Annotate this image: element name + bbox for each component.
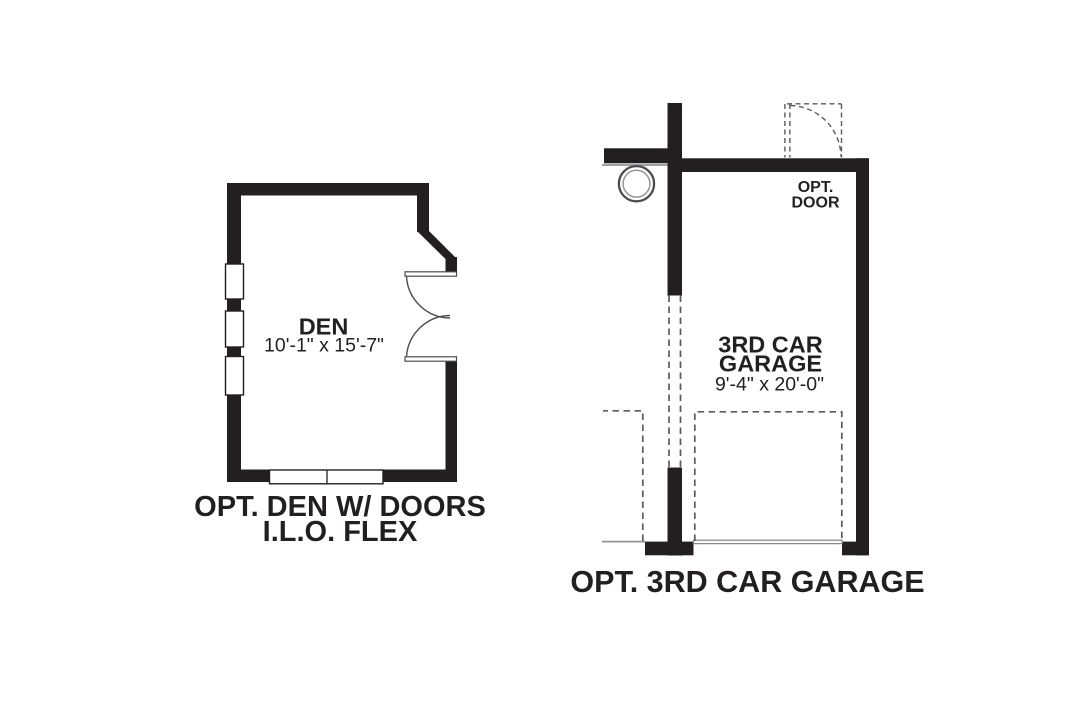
opt-door-label-line1: OPT. — [798, 179, 834, 196]
floorplan-page: DEN 10'-1" x 15'-7" OPT. DEN W/ DOORS I.… — [0, 0, 1080, 720]
floorplan-canvas: DEN 10'-1" x 15'-7" OPT. DEN W/ DOORS I.… — [0, 0, 1080, 720]
den-window-left-1 — [226, 264, 244, 299]
garage-wall-right — [856, 158, 869, 555]
garage-room-dimensions: 9'-4" x 20'-0" — [715, 374, 824, 396]
garage-column-circle-outer — [619, 166, 654, 201]
den-window-bottom — [270, 470, 384, 484]
den-room-dimensions: 10'-1" x 15'-7" — [264, 335, 384, 357]
garage-caption: OPT. 3RD CAR GARAGE — [570, 565, 924, 599]
garage-wall-top — [682, 158, 869, 172]
garage-wall-stub-bottom-right — [842, 542, 869, 556]
den-wall-diagonal — [417, 231, 457, 259]
den-door-swing-top — [407, 276, 451, 318]
den-window-left-2 — [226, 311, 244, 347]
den-plan: DEN 10'-1" x 15'-7" OPT. DEN W/ DOORS I.… — [194, 183, 486, 548]
garage-wall-left-vertical-upper — [668, 103, 683, 296]
den-wall-right-upper — [417, 183, 429, 232]
den-door-leaf-bottom — [405, 357, 457, 361]
opt-door-label-line2: DOOR — [792, 195, 840, 212]
garage-dashed-existing-outline — [603, 411, 643, 541]
garage-plan: OPT. DOOR 3RD CAR GARAGE 9'-4" x 20'-0" … — [570, 103, 924, 599]
den-wall-right-stub — [446, 257, 458, 274]
opt-door-swing-arc — [791, 106, 842, 157]
den-door-swing-bottom — [407, 316, 451, 357]
den-door-leaf-top — [405, 272, 457, 276]
den-window-left-3 — [226, 357, 244, 396]
garage-wall-left-horizontal — [604, 148, 668, 163]
garage-dashed-bay-outline — [695, 412, 842, 541]
den-wall-top — [227, 183, 429, 196]
garage-door-panel — [694, 540, 843, 543]
garage-wall-stub-bottom-left — [645, 542, 694, 556]
den-caption-line2: I.L.O. FLEX — [263, 516, 418, 548]
den-wall-right-lower — [446, 360, 458, 483]
